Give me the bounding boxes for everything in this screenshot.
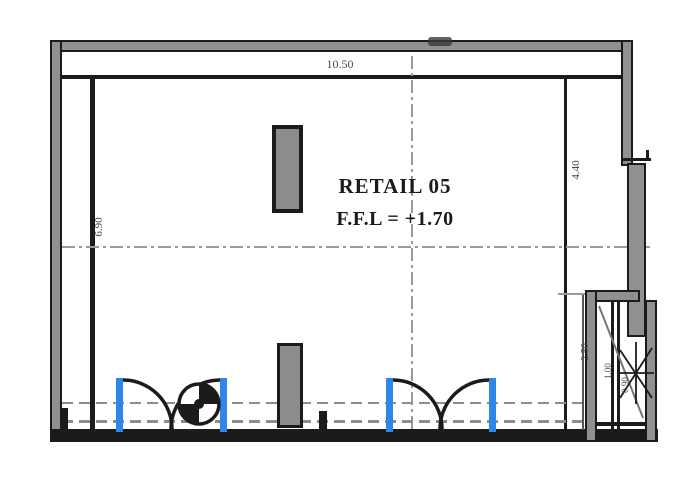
room-label: RETAIL 05 — [275, 174, 515, 199]
dim-right-upper: 4.40 — [570, 150, 584, 190]
ffl-label: F.F.L = +1.70 — [275, 208, 515, 231]
dim-top-width: 10.50 — [300, 57, 380, 72]
dim-left-height: 6.90 — [93, 207, 107, 247]
door2-swing-arcs — [393, 380, 489, 429]
dim-right-lower: 2.50 — [580, 334, 592, 370]
floor-plan: RETAIL 05 F.F.L = +1.70 10.50 6.90 4.40 … — [0, 0, 699, 490]
dim-shaft-width: 1.00 — [603, 356, 613, 386]
benchmark-symbol — [179, 384, 219, 424]
dim-shaft-depth: 0.90 — [620, 370, 630, 400]
